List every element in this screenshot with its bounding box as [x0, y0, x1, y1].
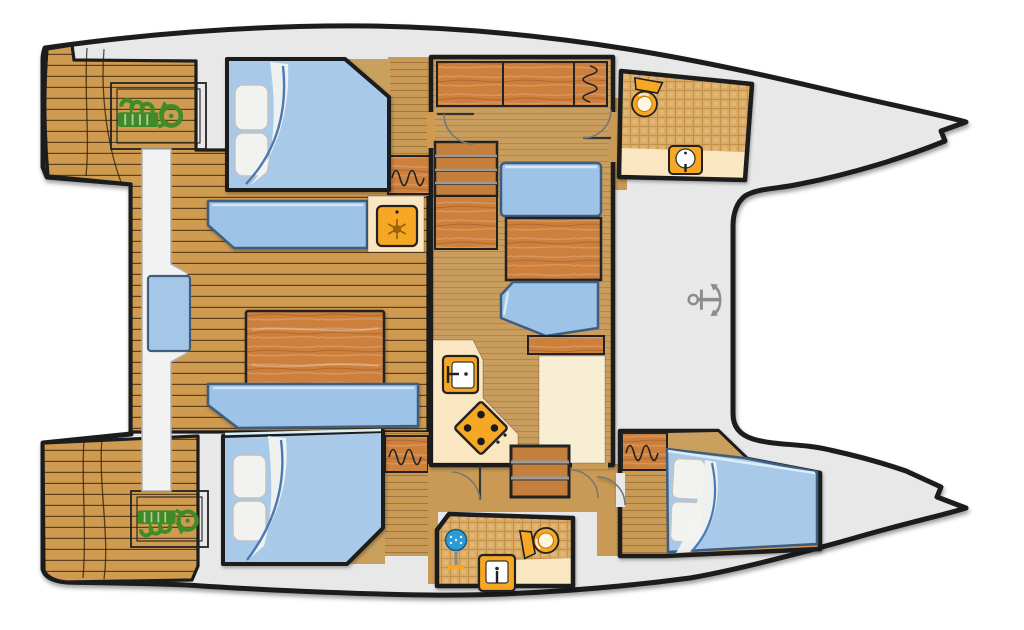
bench-cushion — [148, 276, 190, 351]
washbasin-icon — [479, 555, 515, 591]
step-landing — [435, 196, 497, 249]
cockpit-table — [246, 311, 384, 386]
dinette-table — [506, 218, 601, 280]
aft-deck-bottom — [43, 436, 198, 582]
floorplan-canvas: ⚓ — [0, 0, 1024, 630]
cockpit-bench-bottom — [208, 384, 418, 428]
dinette-seat — [501, 163, 601, 216]
washbasin-icon — [669, 146, 702, 174]
pillow — [233, 501, 266, 541]
cabin-aft-bottom — [223, 430, 430, 564]
galley-sink-icon — [443, 356, 478, 393]
wardrobe — [385, 436, 428, 472]
dinette-counter — [528, 336, 604, 354]
cabinet — [437, 62, 503, 106]
cockpit-bench-top — [208, 201, 367, 248]
pillow — [235, 85, 268, 130]
wardrobe — [388, 156, 430, 194]
cabin-aft-top — [227, 57, 430, 196]
anchor-icon: ⚓ — [678, 279, 732, 320]
cockpit-fridge-unit — [368, 196, 424, 252]
dinette — [501, 163, 604, 354]
steps-bottom-hull — [511, 446, 569, 497]
steps-top-hull — [435, 142, 497, 249]
bathroom-top — [619, 71, 752, 180]
bathroom-bottom — [437, 514, 573, 591]
wardrobe — [574, 62, 607, 106]
cabinet — [503, 62, 574, 106]
floorplan-page: ⚓ — [0, 0, 1024, 630]
salon — [427, 57, 617, 469]
wardrobe — [622, 433, 667, 470]
pillow — [233, 455, 266, 498]
fridge-dot — [395, 210, 398, 213]
